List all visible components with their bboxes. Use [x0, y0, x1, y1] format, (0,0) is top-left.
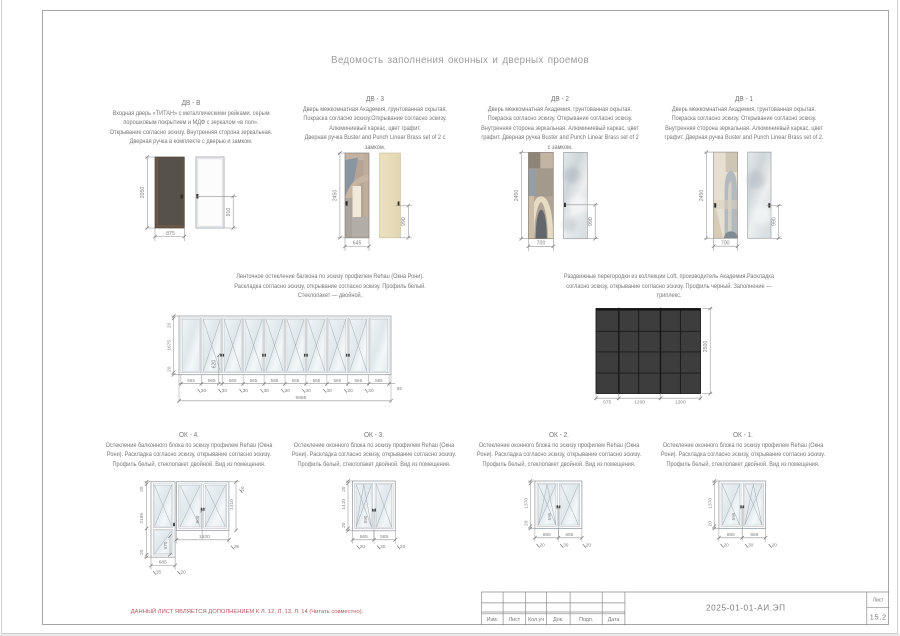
svg-text:565: 565 [187, 378, 195, 383]
svg-text:565: 565 [229, 378, 237, 383]
svg-text:685: 685 [159, 560, 167, 566]
svg-text:5985: 5985 [295, 395, 306, 401]
svg-text:15.2: 15.2 [870, 613, 887, 622]
svg-text:35: 35 [234, 544, 240, 550]
svg-text:645: 645 [353, 241, 362, 247]
svg-text:Лист: Лист [873, 598, 885, 604]
svg-text:30: 30 [563, 542, 569, 548]
svg-text:2025-01-01-АИ.ЭП: 2025-01-01-АИ.ЭП [706, 603, 786, 612]
svg-text:20: 20 [240, 486, 245, 492]
svg-text:20: 20 [341, 522, 347, 528]
svg-text:20: 20 [360, 544, 366, 550]
svg-text:990: 990 [401, 217, 407, 226]
svg-text:700: 700 [721, 240, 730, 246]
svg-text:655: 655 [543, 532, 551, 538]
svg-text:30: 30 [748, 542, 754, 548]
svg-text:1200: 1200 [634, 400, 645, 406]
svg-text:1410: 1410 [229, 499, 235, 510]
svg-text:2050: 2050 [140, 187, 146, 199]
svg-text:1200: 1200 [675, 400, 686, 406]
svg-text:655: 655 [750, 532, 758, 538]
svg-text:20: 20 [400, 544, 406, 550]
svg-text:Кол.уч: Кол.уч [528, 617, 544, 623]
svg-text:2450: 2450 [332, 190, 338, 202]
svg-text:2500: 2500 [703, 341, 709, 353]
svg-text:30: 30 [368, 388, 374, 394]
svg-text:30: 30 [264, 388, 270, 394]
svg-text:30: 30 [284, 388, 290, 394]
svg-text:20: 20 [341, 486, 347, 492]
svg-text:20: 20 [540, 542, 546, 548]
svg-text:20: 20 [139, 549, 145, 555]
svg-text:Изм.: Изм. [487, 617, 498, 623]
svg-text:565: 565 [208, 378, 216, 383]
svg-text:65: 65 [397, 386, 403, 391]
svg-text:565: 565 [354, 378, 362, 383]
svg-text:565: 565 [333, 378, 341, 383]
svg-text:30: 30 [380, 544, 386, 550]
svg-text:1370: 1370 [707, 498, 713, 509]
svg-text:565: 565 [375, 378, 383, 383]
svg-text:1675: 1675 [167, 340, 173, 351]
svg-text:20: 20 [167, 366, 173, 372]
svg-text:20: 20 [139, 486, 145, 492]
svg-text:30: 30 [222, 388, 228, 394]
svg-text:35: 35 [156, 569, 162, 575]
svg-text:1370: 1370 [523, 498, 529, 509]
svg-text:2450: 2450 [699, 190, 705, 202]
svg-text:675: 675 [603, 400, 611, 406]
svg-text:590: 590 [363, 515, 368, 523]
svg-text:2195: 2195 [139, 513, 145, 524]
svg-text:565: 565 [250, 378, 258, 383]
svg-text:1410: 1410 [341, 499, 347, 510]
svg-text:565: 565 [360, 534, 368, 540]
svg-text:30: 30 [347, 388, 353, 394]
svg-text:30: 30 [305, 388, 311, 394]
svg-text:910: 910 [226, 208, 232, 217]
svg-text:Подп.: Подп. [579, 617, 593, 623]
svg-text:30: 30 [201, 388, 207, 394]
svg-text:20: 20 [586, 542, 592, 548]
svg-text:20: 20 [724, 542, 730, 548]
svg-text:565: 565 [380, 534, 388, 540]
svg-text:Лист: Лист [509, 617, 521, 623]
svg-text:600: 600 [195, 515, 200, 523]
svg-text:700: 700 [537, 241, 546, 247]
svg-text:990: 990 [588, 217, 594, 226]
svg-text:20: 20 [772, 542, 778, 548]
svg-text:655: 655 [565, 532, 573, 538]
svg-text:875: 875 [166, 231, 175, 237]
svg-text:565: 565 [313, 378, 321, 383]
svg-text:Док.: Док. [553, 617, 563, 623]
svg-text:620: 620 [211, 360, 217, 369]
svg-text:20: 20 [523, 520, 529, 526]
svg-text:990: 990 [771, 217, 777, 226]
svg-text:2450: 2450 [514, 190, 520, 202]
svg-text:30: 30 [243, 388, 249, 394]
svg-text:20: 20 [180, 569, 186, 575]
svg-text:655: 655 [727, 532, 735, 538]
svg-text:Дата: Дата [608, 617, 620, 623]
svg-text:595: 595 [731, 512, 736, 520]
svg-text:20: 20 [167, 322, 173, 328]
svg-text:565: 565 [271, 378, 279, 383]
svg-text:970: 970 [163, 541, 168, 549]
svg-text:565: 565 [292, 378, 300, 383]
svg-text:595: 595 [547, 512, 552, 520]
svg-text:30: 30 [326, 388, 332, 394]
svg-text:1530: 1530 [199, 534, 210, 540]
svg-text:20: 20 [707, 521, 713, 527]
